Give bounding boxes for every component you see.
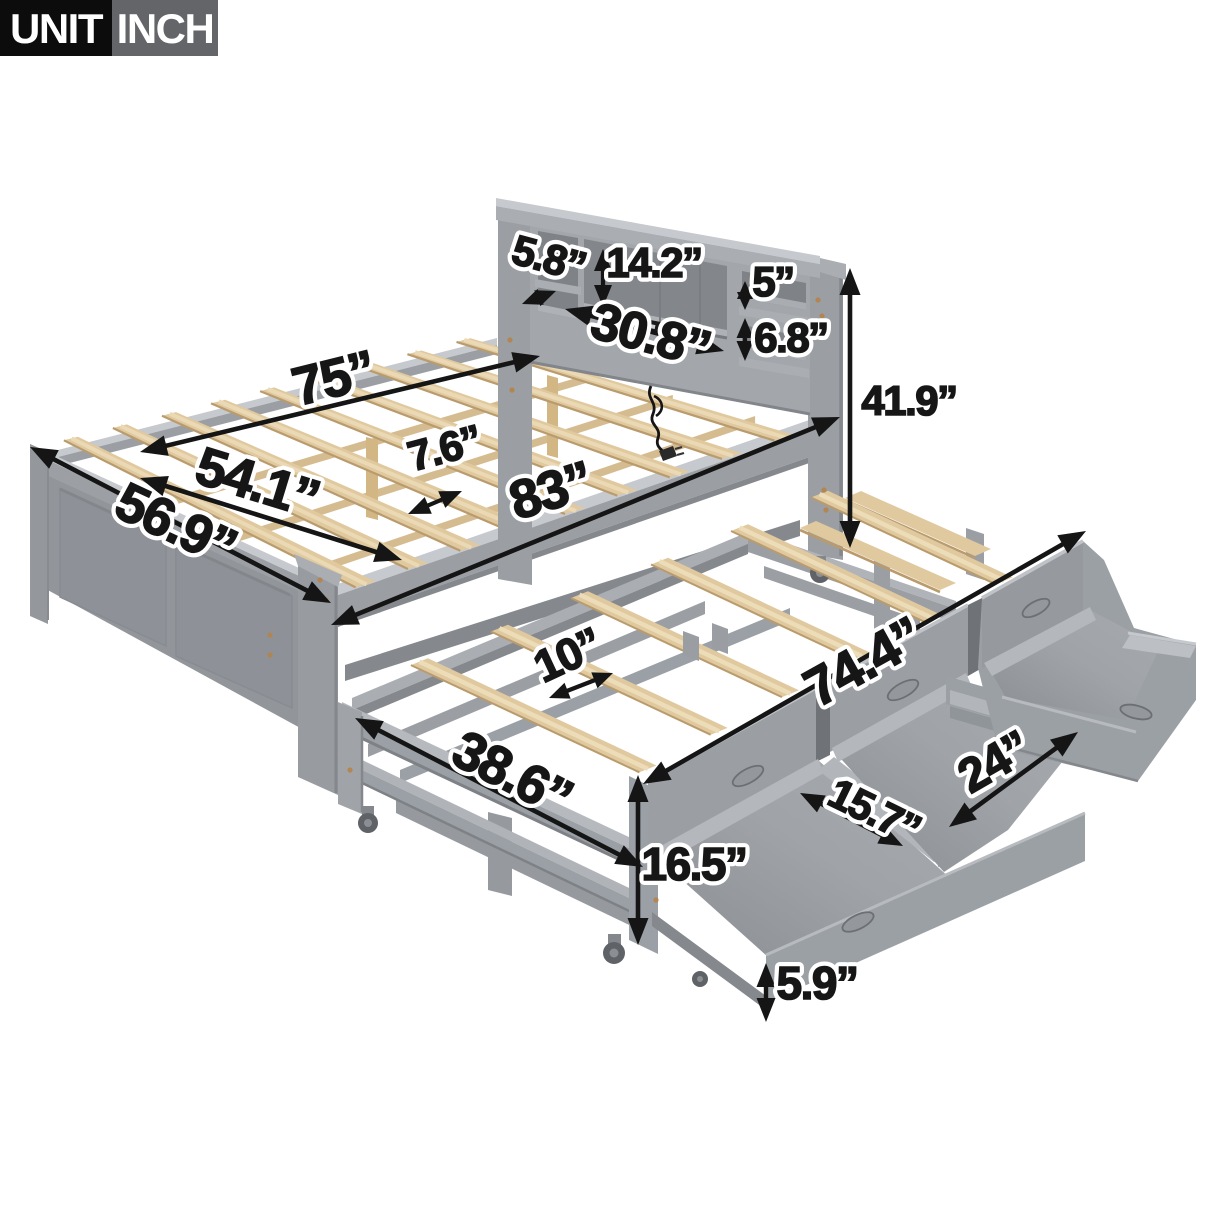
svg-text:16.5”: 16.5”	[641, 838, 746, 890]
svg-text:5.9”: 5.9”	[777, 957, 858, 1009]
svg-text:5”: 5”	[752, 258, 793, 305]
svg-text:6.8”: 6.8”	[754, 314, 827, 361]
svg-text:INCH: INCH	[117, 5, 214, 52]
svg-text:41.9”: 41.9”	[861, 377, 956, 424]
svg-text:14.2”: 14.2”	[606, 239, 701, 286]
svg-text:UNIT: UNIT	[10, 5, 104, 52]
